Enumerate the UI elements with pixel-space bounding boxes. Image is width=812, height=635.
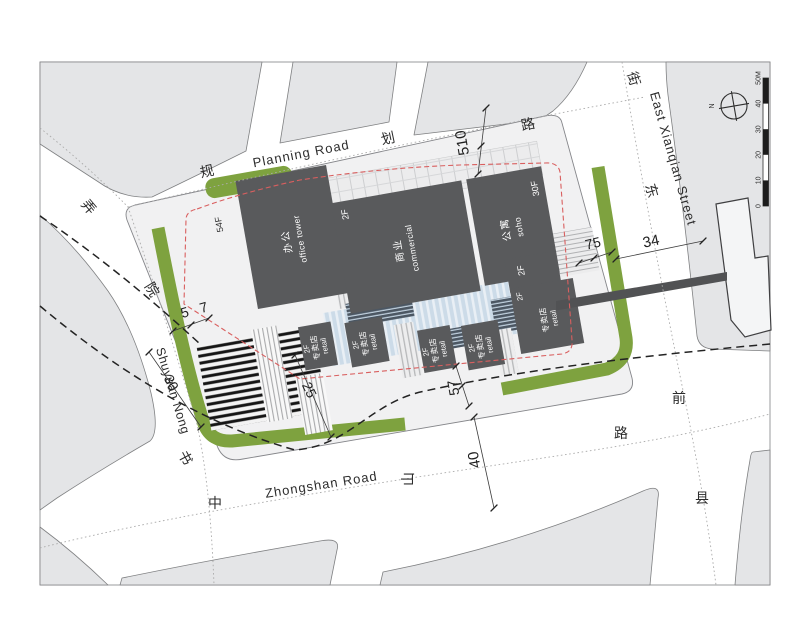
- compass-north-label: N: [709, 103, 716, 108]
- road-char-zhongshan-1: 山: [400, 472, 416, 486]
- scale-label-20: 20: [756, 151, 763, 159]
- dimension-zhongshan-width: 40: [465, 450, 485, 469]
- road-char-zhongshan-2: 路: [614, 425, 628, 441]
- scale-label-40: 40: [756, 100, 763, 108]
- dimension-south-offset: 57: [444, 379, 462, 397]
- road-char-xianqian-xian: 县: [695, 490, 709, 506]
- scale-label-10: 10: [756, 176, 763, 184]
- road-char-zhongshan-0: 中: [208, 495, 222, 511]
- scale-label-0: 0: [756, 204, 763, 208]
- scale-label-30: 30: [756, 125, 763, 133]
- site-plan-page: 办公 office tower 54F 商业 commercial 2F 公寓 …: [0, 0, 812, 630]
- road-char-xianqian-qian: 前: [672, 390, 686, 406]
- scale-label-50m: 50M: [756, 71, 763, 85]
- dimension-xianqian-width: 34: [641, 232, 661, 252]
- site-plan-canvas: 办公 office tower 54F 商业 commercial 2F 公寓 …: [0, 0, 812, 630]
